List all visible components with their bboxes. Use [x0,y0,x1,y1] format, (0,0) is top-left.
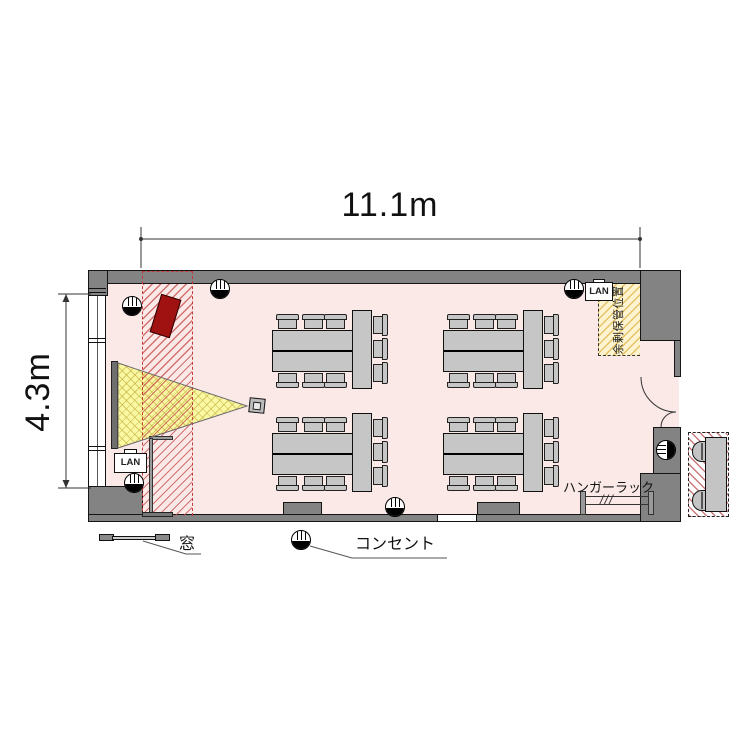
outlet-half [291,541,311,550]
table-divider [444,453,523,455]
chair [544,362,559,384]
hanger-rack-label: ハンガーラック [563,477,654,496]
legend-window-label: 窓 [179,530,195,554]
chair [324,373,347,388]
chair [473,314,496,329]
window-mullion [88,446,106,451]
chair [495,417,518,432]
dimension-end-dot [139,237,143,241]
stored-chair [692,490,706,511]
chair [276,476,299,491]
projector [248,397,265,414]
chair [544,417,559,439]
window-mullion [88,338,106,343]
chair [495,373,518,388]
projector-lens [253,402,262,411]
hanger-rack-rails [586,496,648,505]
end-table [523,310,543,389]
chair [302,373,325,388]
bottom-wall-opening [437,514,477,522]
outlet-half [210,290,230,299]
table-island [443,413,559,492]
chair [544,441,559,463]
chair [324,417,347,432]
table-divider [273,453,352,455]
left-window-wall [88,296,106,486]
chair [447,373,470,388]
top-right-wall-block [640,270,681,341]
chair [373,417,388,439]
power-outlet-symbol [564,279,584,299]
long-tables [272,330,353,372]
long-tables [443,433,524,475]
power-outlet-symbol [210,279,230,299]
outlet-half [564,290,584,299]
lan-port-right: LAN [585,282,613,301]
chair [447,417,470,432]
table-island [272,413,388,492]
chair [495,476,518,491]
chair [544,314,559,336]
window-glass-line [97,296,98,486]
chair [302,314,325,329]
lan-port-left: LAN [114,453,147,473]
chair [373,465,388,487]
chair [302,476,325,491]
table-island [272,310,388,389]
partition-line [149,438,153,514]
dimension-arrow [63,294,70,302]
chair [324,314,347,329]
chair [473,476,496,491]
table-divider [273,350,352,352]
dimension-arrow [63,480,70,488]
chair [276,373,299,388]
stored-table [705,437,727,512]
chair [302,417,325,432]
wall-pilaster [477,502,520,515]
wall-pilaster [283,502,322,515]
chair [373,314,388,336]
power-outlet-symbol [385,497,405,517]
long-tables [443,330,524,372]
chair [373,441,388,463]
legend-window-cap [155,534,170,541]
legend-window-symbol [112,536,158,540]
height-dimension-text: 4.3m [18,336,58,448]
chair [373,338,388,360]
power-outlet-symbol [291,530,311,550]
stored-chair [692,441,706,462]
chair [495,314,518,329]
power-outlet-symbol [124,473,144,493]
chair [276,417,299,432]
outlet-half [667,440,676,460]
chair [473,417,496,432]
chair [447,314,470,329]
power-outlet-symbol [122,296,142,316]
outlet-half [124,484,144,493]
chair [373,362,388,384]
outlet-half [122,307,142,316]
chair [544,338,559,360]
dimension-end-dot [638,237,642,241]
right-wall-above-door [674,340,681,377]
chair [544,465,559,487]
table-island [443,310,559,389]
table-divider [444,350,523,352]
stored-chair-back [701,443,703,460]
width-dimension-text: 11.1m [260,186,520,225]
projection-screen [111,361,118,449]
partition-base [142,512,173,517]
floor-plan: 余剰保管位置 /// ハンガーラック LAN LAN 窓 コンセント 11.1m… [0,0,750,750]
end-table [523,413,543,492]
window-mullion [88,288,106,293]
chair [324,476,347,491]
chair [473,373,496,388]
legend-outlet-label: コンセント [355,530,435,554]
long-tables [272,433,353,475]
outside-storage-area [688,432,729,517]
end-table [352,310,372,389]
stored-chair-back [701,492,703,509]
chair [276,314,299,329]
outlet-half [385,508,405,517]
chair [447,476,470,491]
end-table [352,413,372,492]
power-outlet-symbol [656,440,676,460]
